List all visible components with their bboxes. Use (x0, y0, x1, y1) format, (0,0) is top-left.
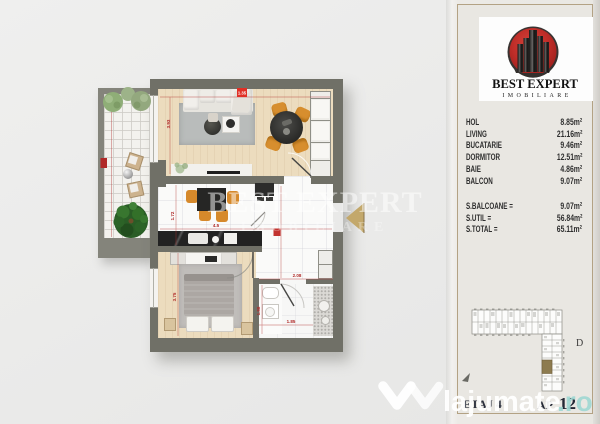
svg-text:1.85: 1.85 (287, 319, 296, 324)
svg-text:lajumate: lajumate (443, 386, 561, 418)
svg-text:IMOBILIARE: IMOBILIARE (502, 93, 571, 99)
svg-text:3.75: 3.75 (172, 292, 177, 301)
svg-text:1.35: 1.35 (238, 91, 247, 96)
svg-text:1.88: 1.88 (256, 306, 261, 315)
svg-text:D: D (576, 338, 583, 349)
svg-text:2.08: 2.08 (293, 273, 302, 278)
svg-text:1.72: 1.72 (170, 211, 175, 220)
svg-text:BEST EXPERT: BEST EXPERT (492, 77, 578, 91)
svg-text:3.93: 3.93 (166, 119, 171, 128)
svg-text:.ro: .ro (557, 386, 593, 417)
